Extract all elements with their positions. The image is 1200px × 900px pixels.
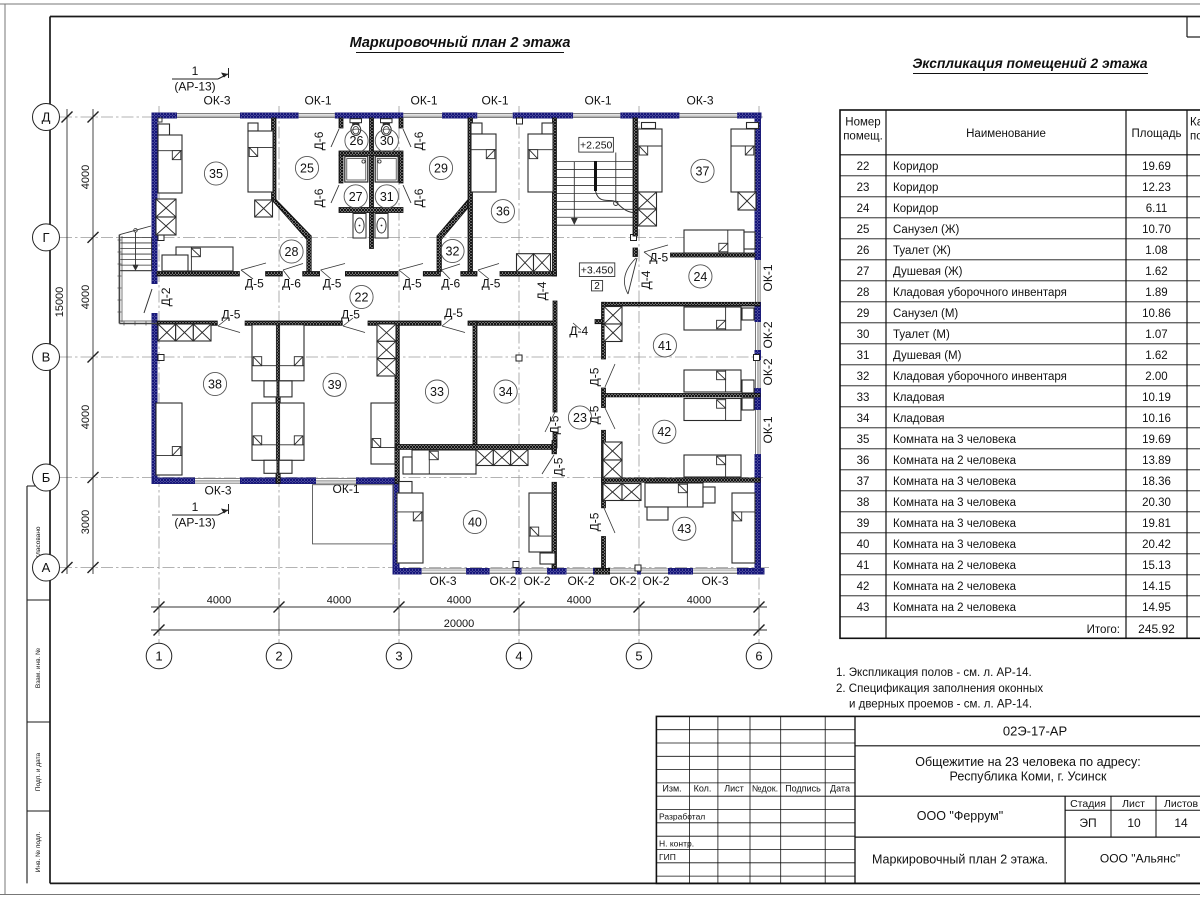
svg-text:№док.: №док. (752, 784, 778, 794)
svg-text:29: 29 (434, 161, 448, 175)
svg-text:Туалет (Ж): Туалет (Ж) (893, 245, 951, 257)
svg-text:1: 1 (155, 649, 162, 664)
svg-text:24: 24 (693, 270, 707, 284)
svg-text:31: 31 (857, 350, 870, 362)
svg-text:1.62: 1.62 (1145, 266, 1167, 278)
svg-text:4000: 4000 (447, 595, 471, 607)
svg-text:ОК-1: ОК-1 (761, 264, 775, 291)
svg-text:14.95: 14.95 (1142, 602, 1171, 614)
svg-text:13.89: 13.89 (1142, 455, 1171, 467)
svg-text:10.16: 10.16 (1142, 413, 1171, 425)
svg-text:4000: 4000 (80, 405, 92, 429)
svg-text:28: 28 (857, 287, 870, 299)
svg-text:Кол.: Кол. (694, 784, 712, 794)
svg-text:10.70: 10.70 (1142, 224, 1171, 236)
svg-text:Д-4: Д-4 (535, 281, 549, 300)
svg-text:ГИП: ГИП (659, 852, 676, 862)
svg-text:Д-5: Д-5 (548, 415, 562, 434)
svg-text:ОК-1: ОК-1 (411, 94, 438, 108)
svg-text:39: 39 (328, 378, 342, 392)
svg-text:32: 32 (857, 371, 870, 383)
svg-text:1. Экспликация полов - см. л.: 1. Экспликация полов - см. л. АР-14. (836, 667, 1032, 679)
svg-text:2. Спецификация заполнения око: 2. Спецификация заполнения оконных (836, 683, 1043, 695)
svg-text:ООО "Феррум": ООО "Феррум" (917, 809, 1003, 823)
svg-text:ОК-1: ОК-1 (305, 94, 332, 108)
svg-text:Комната на 3 человека: Комната на 3 человека (893, 497, 1017, 509)
svg-text:245.92: 245.92 (1138, 622, 1175, 636)
svg-text:35: 35 (857, 434, 870, 446)
svg-text:ОК-1: ОК-1 (482, 94, 509, 108)
svg-text:Д-5: Д-5 (649, 251, 668, 265)
svg-text:Подп. и дата: Подп. и дата (35, 752, 42, 791)
svg-text:1.07: 1.07 (1145, 329, 1167, 341)
svg-text:ЭП: ЭП (1079, 816, 1096, 830)
svg-text:30: 30 (857, 329, 870, 341)
svg-text:23: 23 (857, 182, 870, 194)
svg-text:Б: Б (42, 470, 51, 485)
svg-text:31: 31 (380, 190, 394, 204)
svg-text:39: 39 (857, 518, 870, 530)
svg-text:41: 41 (857, 560, 870, 572)
svg-text:20.30: 20.30 (1142, 497, 1171, 509)
svg-text:Листов: Листов (1164, 798, 1199, 810)
svg-text:26: 26 (857, 245, 870, 257)
svg-text:18.36: 18.36 (1142, 476, 1171, 488)
svg-text:Площадь: Площадь (1131, 128, 1181, 140)
svg-text:37: 37 (857, 476, 870, 488)
svg-text:38: 38 (857, 497, 870, 509)
svg-text:2: 2 (275, 649, 282, 664)
svg-text:Душевая (Ж): Душевая (Ж) (893, 266, 963, 278)
svg-text:26: 26 (350, 134, 364, 148)
svg-text:Н. контр.: Н. контр. (659, 839, 694, 849)
svg-text:Республика Коми, г. Усинск: Республика Коми, г. Усинск (950, 770, 1107, 784)
svg-text:Коридор: Коридор (893, 203, 938, 215)
svg-text:по: по (1190, 131, 1200, 143)
svg-text:ООО "Альянс": ООО "Альянс" (1100, 852, 1180, 866)
svg-text:ОК-2: ОК-2 (490, 574, 517, 588)
svg-text:40: 40 (857, 539, 870, 551)
svg-text:ОК-2: ОК-2 (761, 321, 775, 348)
svg-text:23: 23 (573, 411, 587, 425)
svg-text:Д-5: Д-5 (482, 277, 501, 291)
svg-text:6: 6 (755, 649, 762, 664)
svg-text:Инв. № подл.: Инв. № подл. (35, 832, 42, 873)
svg-text:1.62: 1.62 (1145, 350, 1167, 362)
svg-text:Комната на 3 человека: Комната на 3 человека (893, 539, 1017, 551)
svg-text:ОК-3: ОК-3 (687, 94, 714, 108)
svg-text:28: 28 (285, 245, 299, 259)
svg-text:Коридор: Коридор (893, 161, 938, 173)
svg-text:Маркировочный план 2 этажа: Маркировочный план 2 этажа (350, 35, 571, 51)
svg-text:24: 24 (857, 203, 870, 215)
svg-text:36: 36 (496, 205, 510, 219)
svg-text:(АР-13): (АР-13) (174, 516, 215, 530)
svg-text:22: 22 (355, 290, 369, 304)
svg-text:Лист: Лист (724, 784, 744, 794)
svg-text:ОК-3: ОК-3 (204, 94, 231, 108)
svg-text:Разработал: Разработал (659, 812, 705, 822)
svg-text:(АР-13): (АР-13) (174, 80, 215, 94)
svg-text:32: 32 (446, 244, 460, 258)
svg-text:Д-4: Д-4 (569, 324, 588, 338)
svg-text:Д-5: Д-5 (444, 306, 463, 320)
svg-text:Номер: Номер (845, 117, 880, 129)
svg-text:помещ.: помещ. (843, 131, 883, 143)
svg-text:4000: 4000 (327, 595, 351, 607)
svg-text:Лист: Лист (1122, 798, 1145, 810)
svg-text:ОК-3: ОК-3 (430, 574, 457, 588)
svg-text:43: 43 (857, 602, 870, 614)
svg-text:Комната на 2 человека: Комната на 2 человека (893, 581, 1017, 593)
svg-text:и дверных проемов - см. л. АР-: и дверных проемов - см. л. АР-14. (849, 699, 1032, 711)
svg-text:Комната на 3 человека: Комната на 3 человека (893, 476, 1017, 488)
svg-text:Кладовая уборочного инвентаря: Кладовая уборочного инвентаря (893, 287, 1067, 299)
svg-text:Кладовая уборочного инвентаря: Кладовая уборочного инвентаря (893, 371, 1067, 383)
svg-text:27: 27 (349, 190, 363, 204)
svg-text:Душевая (М): Душевая (М) (893, 350, 962, 362)
svg-text:Подпись: Подпись (785, 784, 821, 794)
svg-text:4000: 4000 (567, 595, 591, 607)
svg-text:Д-5: Д-5 (341, 308, 360, 322)
svg-text:Общежитие на 23 человека по ад: Общежитие на 23 человека по адресу: (915, 755, 1140, 769)
svg-text:Кладовая: Кладовая (893, 392, 945, 404)
svg-text:20000: 20000 (444, 618, 475, 630)
svg-text:Комната на 2 человека: Комната на 2 человека (893, 560, 1017, 572)
svg-text:Д-5: Д-5 (552, 457, 566, 476)
svg-text:Маркировочный план 2 этажа.: Маркировочный план 2 этажа. (872, 853, 1048, 867)
svg-text:19.81: 19.81 (1142, 518, 1171, 530)
svg-text:6.11: 6.11 (1146, 203, 1168, 215)
svg-text:Г: Г (42, 230, 49, 245)
svg-text:Комната на 3 человека: Комната на 3 человека (893, 518, 1017, 530)
svg-text:Д-6: Д-6 (282, 277, 301, 291)
svg-text:Д-5: Д-5 (222, 308, 241, 322)
svg-text:4000: 4000 (80, 165, 92, 189)
svg-text:Д-6: Д-6 (412, 188, 426, 207)
svg-text:3: 3 (395, 649, 402, 664)
svg-text:Туалет (М): Туалет (М) (893, 329, 950, 341)
svg-text:12.23: 12.23 (1142, 182, 1171, 194)
svg-text:36: 36 (857, 455, 870, 467)
svg-text:34: 34 (499, 385, 513, 399)
svg-text:29: 29 (857, 308, 870, 320)
svg-text:Д-4: Д-4 (639, 270, 653, 289)
svg-text:15000: 15000 (54, 287, 66, 318)
svg-text:14: 14 (1174, 816, 1188, 830)
svg-text:Д-5: Д-5 (403, 277, 422, 291)
svg-text:Изм.: Изм. (662, 784, 681, 794)
svg-text:34: 34 (857, 413, 870, 425)
svg-text:42: 42 (857, 581, 870, 593)
svg-text:ОК-3: ОК-3 (205, 484, 232, 498)
svg-text:Дата: Дата (830, 784, 850, 794)
svg-text:4000: 4000 (687, 595, 711, 607)
svg-text:ОК-1: ОК-1 (585, 94, 612, 108)
svg-text:Экспликация помещений 2 этажа: Экспликация помещений 2 этажа (912, 56, 1148, 71)
svg-text:02Э-17-АР: 02Э-17-АР (1003, 724, 1067, 739)
svg-text:1: 1 (192, 64, 199, 78)
svg-text:1.08: 1.08 (1145, 245, 1167, 257)
svg-text:10: 10 (1127, 816, 1141, 830)
svg-text:Д-6: Д-6 (412, 131, 426, 150)
svg-text:А: А (42, 560, 51, 575)
svg-text:Санузел (М): Санузел (М) (893, 308, 958, 320)
svg-text:Комната на 3 человека: Комната на 3 человека (893, 434, 1017, 446)
svg-text:В: В (42, 350, 51, 365)
svg-text:14.15: 14.15 (1142, 581, 1171, 593)
svg-text:33: 33 (430, 385, 444, 399)
svg-text:4000: 4000 (207, 595, 231, 607)
svg-text:Стадия: Стадия (1070, 798, 1106, 810)
svg-text:27: 27 (857, 266, 870, 278)
svg-text:Д: Д (42, 110, 51, 125)
svg-text:ОК-2: ОК-2 (568, 574, 595, 588)
svg-text:+3.450: +3.450 (581, 265, 614, 277)
svg-text:ОК-2: ОК-2 (524, 574, 551, 588)
svg-text:35: 35 (209, 167, 223, 181)
svg-text:4000: 4000 (80, 285, 92, 309)
svg-text:20.42: 20.42 (1142, 539, 1171, 551)
svg-text:Санузел (Ж): Санузел (Ж) (893, 224, 959, 236)
svg-text:1: 1 (192, 500, 199, 514)
svg-text:Комната на 2 человека: Комната на 2 человека (893, 602, 1017, 614)
svg-text:41: 41 (658, 339, 672, 353)
svg-text:Д-6: Д-6 (312, 188, 326, 207)
svg-text:Д-5: Д-5 (323, 277, 342, 291)
svg-text:15.13: 15.13 (1142, 560, 1171, 572)
svg-text:2: 2 (594, 281, 600, 292)
svg-text:43: 43 (677, 522, 691, 536)
svg-text:Комната на 2 человека: Комната на 2 человека (893, 455, 1017, 467)
svg-text:22: 22 (857, 161, 870, 173)
svg-text:Д-6: Д-6 (312, 131, 326, 150)
svg-text:30: 30 (380, 134, 394, 148)
svg-text:ОК-3: ОК-3 (702, 574, 729, 588)
svg-text:19.69: 19.69 (1142, 161, 1171, 173)
svg-text:3000: 3000 (80, 510, 92, 534)
svg-text:ОК-2: ОК-2 (761, 358, 775, 385)
svg-text:Наименование: Наименование (966, 128, 1046, 140)
svg-text:ОК-1: ОК-1 (761, 416, 775, 443)
svg-text:10.19: 10.19 (1142, 392, 1171, 404)
svg-text:25: 25 (857, 224, 870, 236)
svg-text:10.86: 10.86 (1142, 308, 1171, 320)
svg-text:1.89: 1.89 (1145, 287, 1167, 299)
svg-text:ОК-2: ОК-2 (643, 574, 670, 588)
svg-text:Кладовая: Кладовая (893, 413, 945, 425)
svg-text:+2.250: +2.250 (580, 139, 613, 151)
svg-text:Д-5: Д-5 (588, 367, 602, 386)
svg-text:Ка: Ка (1190, 117, 1200, 129)
svg-text:2.00: 2.00 (1145, 371, 1167, 383)
svg-text:Взам. инв. №: Взам. инв. № (35, 648, 42, 688)
svg-text:33: 33 (857, 392, 870, 404)
svg-text:Д-5: Д-5 (245, 277, 264, 291)
svg-text:Д-2: Д-2 (159, 287, 173, 306)
svg-text:5: 5 (635, 649, 642, 664)
svg-text:38: 38 (208, 377, 222, 391)
svg-text:ОК-1: ОК-1 (333, 482, 360, 496)
svg-text:Итого:: Итого: (1087, 624, 1120, 636)
svg-text:Д-5: Д-5 (588, 512, 602, 531)
svg-text:37: 37 (696, 164, 710, 178)
svg-text:Д-6: Д-6 (441, 277, 460, 291)
svg-text:19.69: 19.69 (1142, 434, 1171, 446)
svg-text:25: 25 (300, 161, 314, 175)
svg-text:42: 42 (657, 425, 671, 439)
svg-text:Д-5: Д-5 (588, 405, 602, 424)
svg-text:4: 4 (515, 649, 522, 664)
svg-text:Коридор: Коридор (893, 182, 938, 194)
svg-text:40: 40 (468, 515, 482, 529)
svg-text:ОК-2: ОК-2 (610, 574, 637, 588)
